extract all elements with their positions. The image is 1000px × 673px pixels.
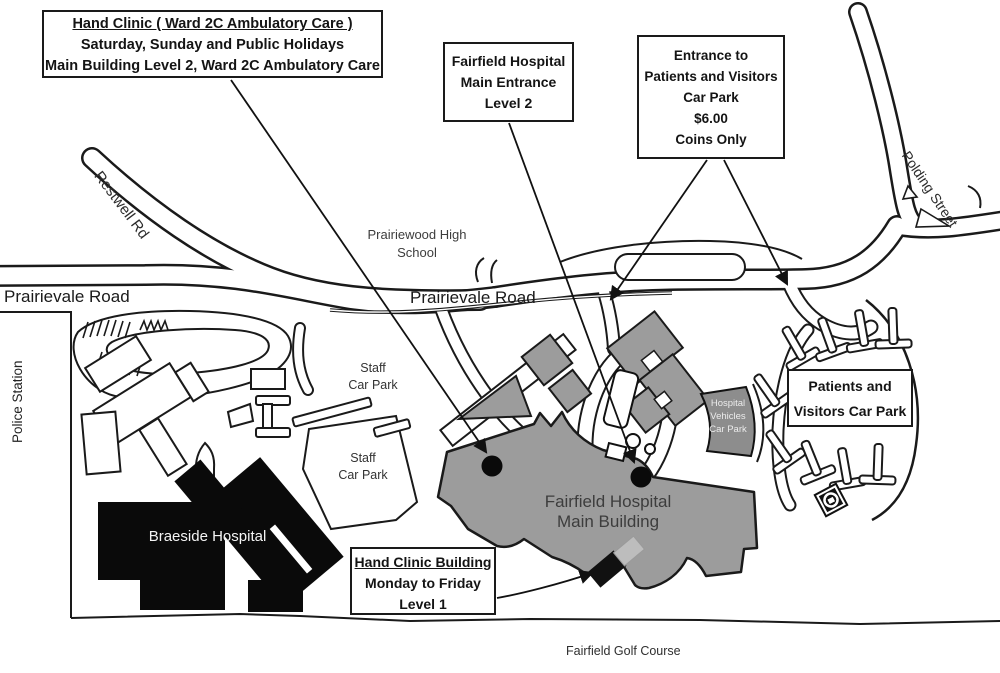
- callout-visitors-carpark: Patients and Visitors Car Park: [787, 369, 913, 427]
- callout-line: Monday to Friday: [352, 573, 494, 594]
- callout-line: Car Park: [639, 87, 783, 108]
- label-prairiewood-high-school: Prairiewood High School: [352, 226, 482, 262]
- marker-dot-west: [482, 456, 503, 477]
- callout-hand-clinic-weekend: Hand Clinic ( Ward 2C Ambulatory Care ) …: [42, 10, 383, 78]
- callout-main-entrance: Fairfield Hospital Main Entrance Level 2: [443, 42, 574, 122]
- callout-line: Patients and Visitors: [639, 66, 783, 87]
- label-staff-car-park-lower: Staff Car Park: [320, 450, 406, 484]
- label-fairfield-main-building: Fairfield Hospital Main Building: [518, 492, 698, 532]
- callout-line: Patients and: [789, 374, 911, 399]
- label-staff-car-park-upper: Staff Car Park: [330, 360, 416, 394]
- callout-line: Fairfield Hospital: [445, 51, 572, 72]
- callout-line: Main Entrance: [445, 72, 572, 93]
- label-fairfield-golf-course: Fairfield Golf Course: [566, 644, 681, 658]
- label-police-station: Police Station: [10, 360, 25, 443]
- callout-hand-clinic-building: Hand Clinic Building Monday to Friday Le…: [350, 547, 496, 615]
- callout-line: Coins Only: [639, 129, 783, 150]
- label-braeside-hospital: Braeside Hospital: [140, 528, 275, 545]
- callout-carpark-entrance: Entrance to Patients and Visitors Car Pa…: [637, 35, 785, 159]
- callout-line: Level 1: [352, 594, 494, 615]
- callout-line: $6.00: [639, 108, 783, 129]
- callout-line: Hand Clinic Building: [352, 552, 494, 573]
- hospital-map: Hand Clinic ( Ward 2C Ambulatory Care ) …: [0, 0, 1000, 673]
- callout-line: Main Building Level 2, Ward 2C Ambulator…: [44, 56, 381, 77]
- callout-line: Entrance to: [639, 45, 783, 66]
- arrow-hand-clinic-building: [497, 573, 592, 598]
- callout-line: Level 2: [445, 93, 572, 114]
- callout-line: Saturday, Sunday and Public Holidays: [44, 35, 381, 56]
- label-prairievale-road-mid: Prairievale Road: [410, 288, 536, 308]
- label-prairievale-road-west: Prairievale Road: [4, 287, 130, 307]
- label-hospital-vehicles-car-park: Hospital Vehicles Car Park: [700, 397, 756, 436]
- callout-line: Visitors Car Park: [789, 399, 911, 424]
- callout-line: Hand Clinic ( Ward 2C Ambulatory Care ): [44, 14, 381, 35]
- marker-dot-main-entrance: [631, 467, 652, 488]
